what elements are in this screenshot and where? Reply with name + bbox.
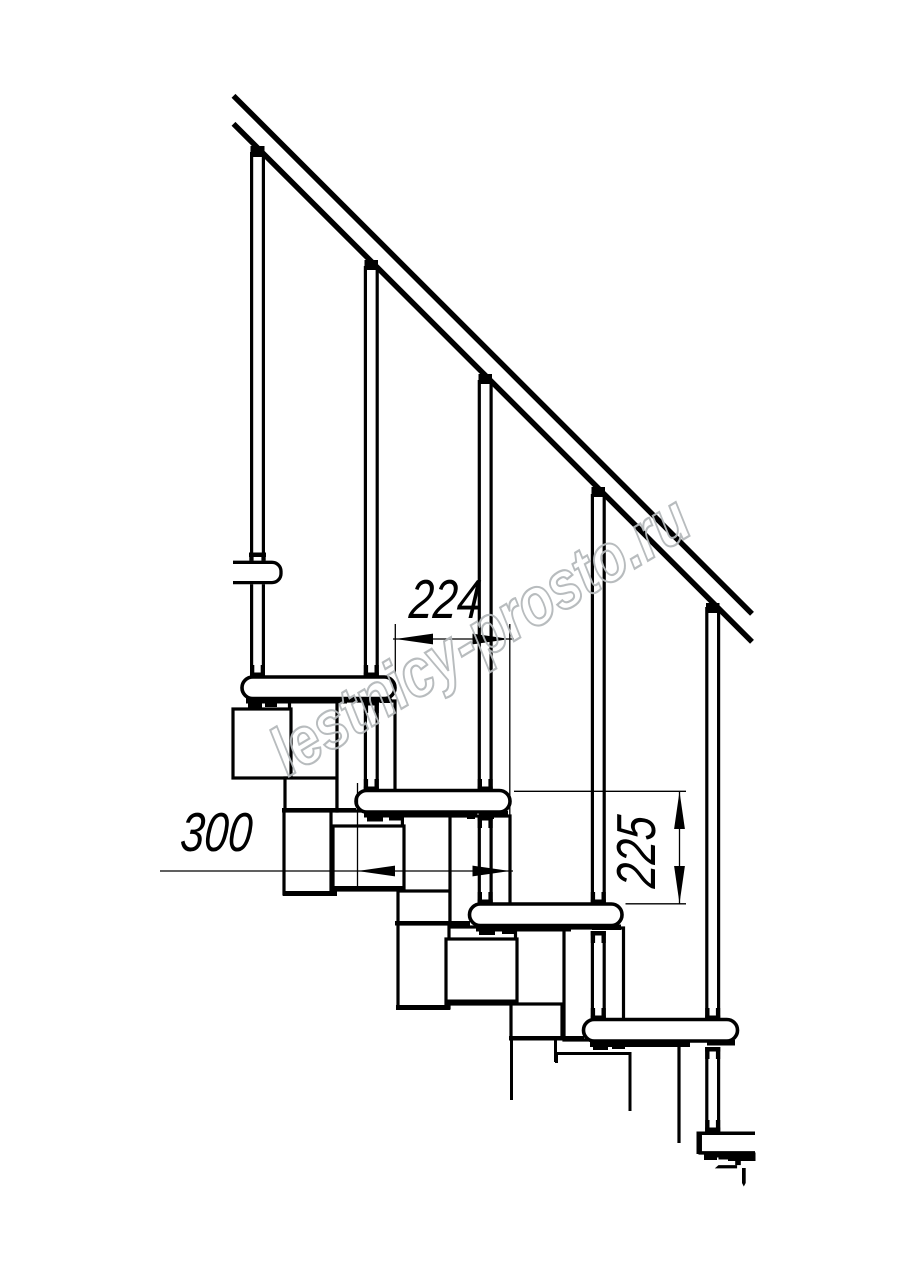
svg-text:300: 300 xyxy=(178,802,255,863)
svg-text:225: 225 xyxy=(606,813,667,891)
